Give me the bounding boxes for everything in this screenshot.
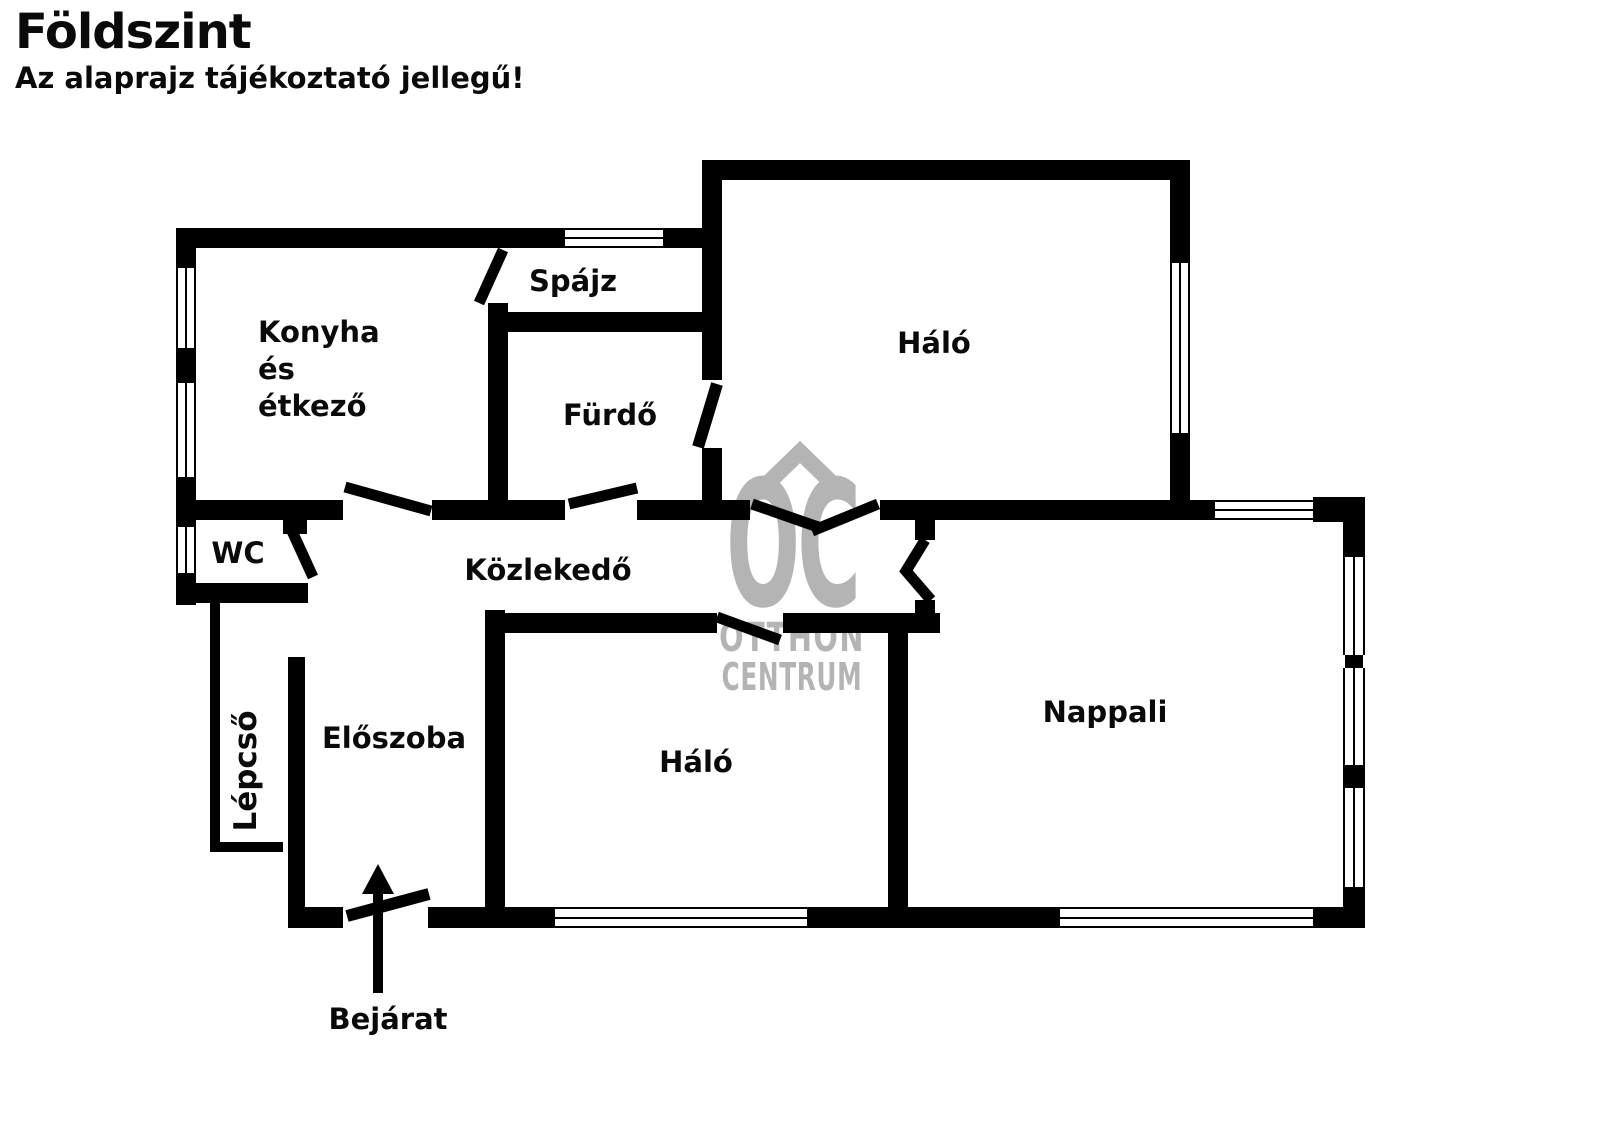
door-leaf <box>698 384 717 447</box>
room-label-eloszoba: Előszoba <box>322 721 466 755</box>
room-label-nappali: Nappali <box>1043 695 1168 729</box>
room-label-konyha: Konyha és étkező <box>258 314 380 425</box>
room-label-halo-top: Háló <box>897 326 971 360</box>
door-leaf <box>479 250 503 303</box>
door-leaf <box>292 531 313 577</box>
entrance-label: Bejárat <box>328 1002 447 1036</box>
room-label-konyha-line2: és <box>258 351 380 388</box>
room-label-konyha-line1: Konyha <box>258 314 380 351</box>
room-label-kozlekedo: Közlekedő <box>464 553 631 587</box>
door-leaf <box>812 504 878 531</box>
page-title: Földszint <box>15 4 251 60</box>
door-graphics <box>0 0 1600 1143</box>
room-label-wc: WC <box>211 536 264 570</box>
door-leaf <box>717 617 780 640</box>
door-leaf <box>569 488 637 504</box>
entrance-arrow-head-icon <box>362 864 394 894</box>
room-label-spajz: Spájz <box>529 264 617 298</box>
door-leaf <box>347 894 429 916</box>
room-label-furdo: Fürdő <box>563 398 657 432</box>
room-label-lepcso: Lépcső <box>228 710 264 831</box>
room-label-konyha-line3: étkező <box>258 388 380 425</box>
door-leaf <box>752 504 818 527</box>
door-leaf <box>345 487 431 511</box>
page-subtitle: Az alaprajz tájékoztató jellegű! <box>15 61 525 95</box>
floor-plan: OC OTTHON CENTRUM <box>0 0 1600 1143</box>
folding-door-symbol <box>906 540 931 600</box>
room-label-halo-middle: Háló <box>659 745 733 779</box>
